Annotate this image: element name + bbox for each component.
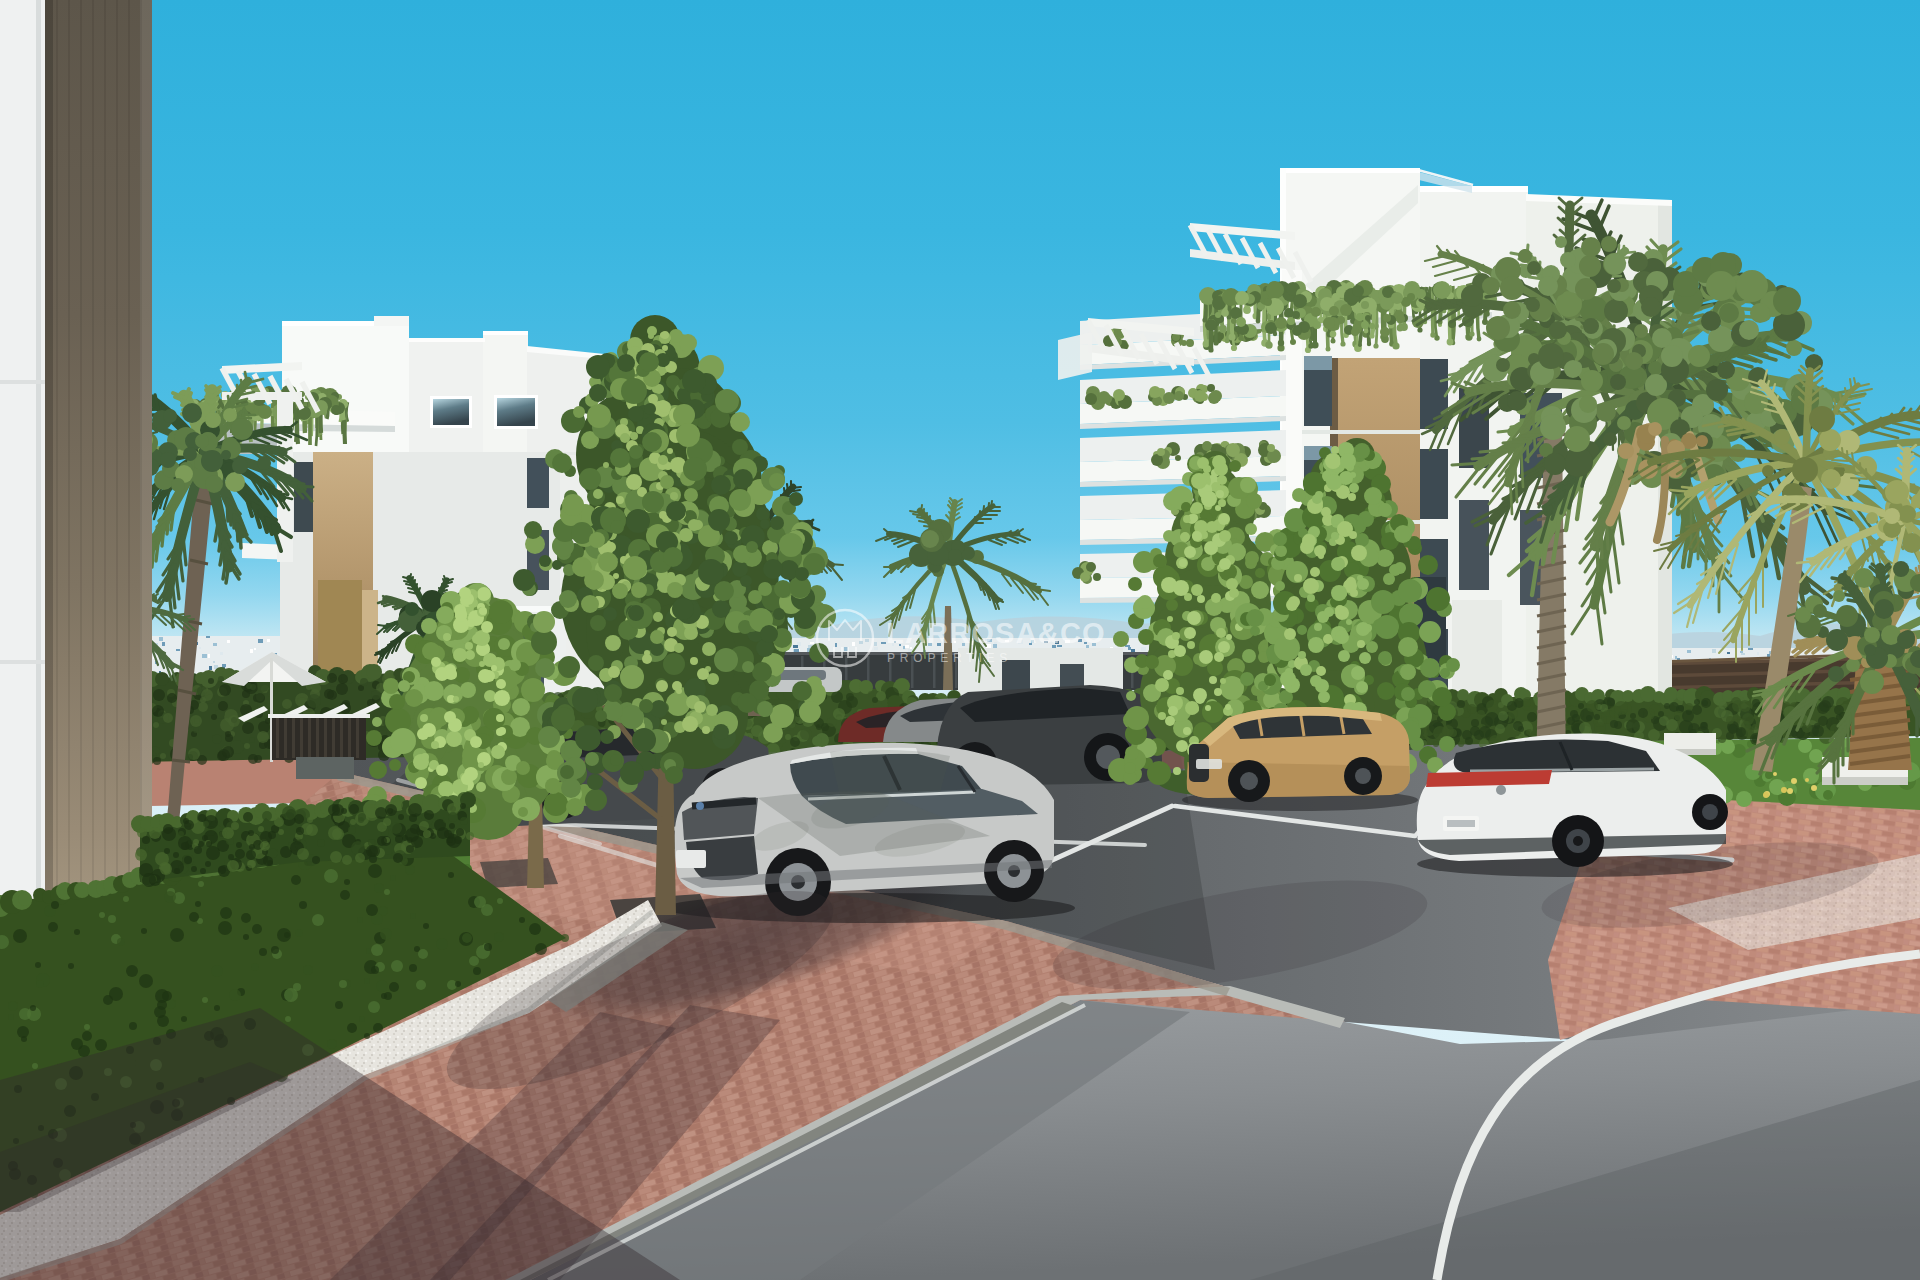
svg-text:LARROSA&CO: LARROSA&CO — [886, 617, 1106, 649]
svg-text:PROPERTIES: PROPERTIES — [887, 651, 1012, 665]
